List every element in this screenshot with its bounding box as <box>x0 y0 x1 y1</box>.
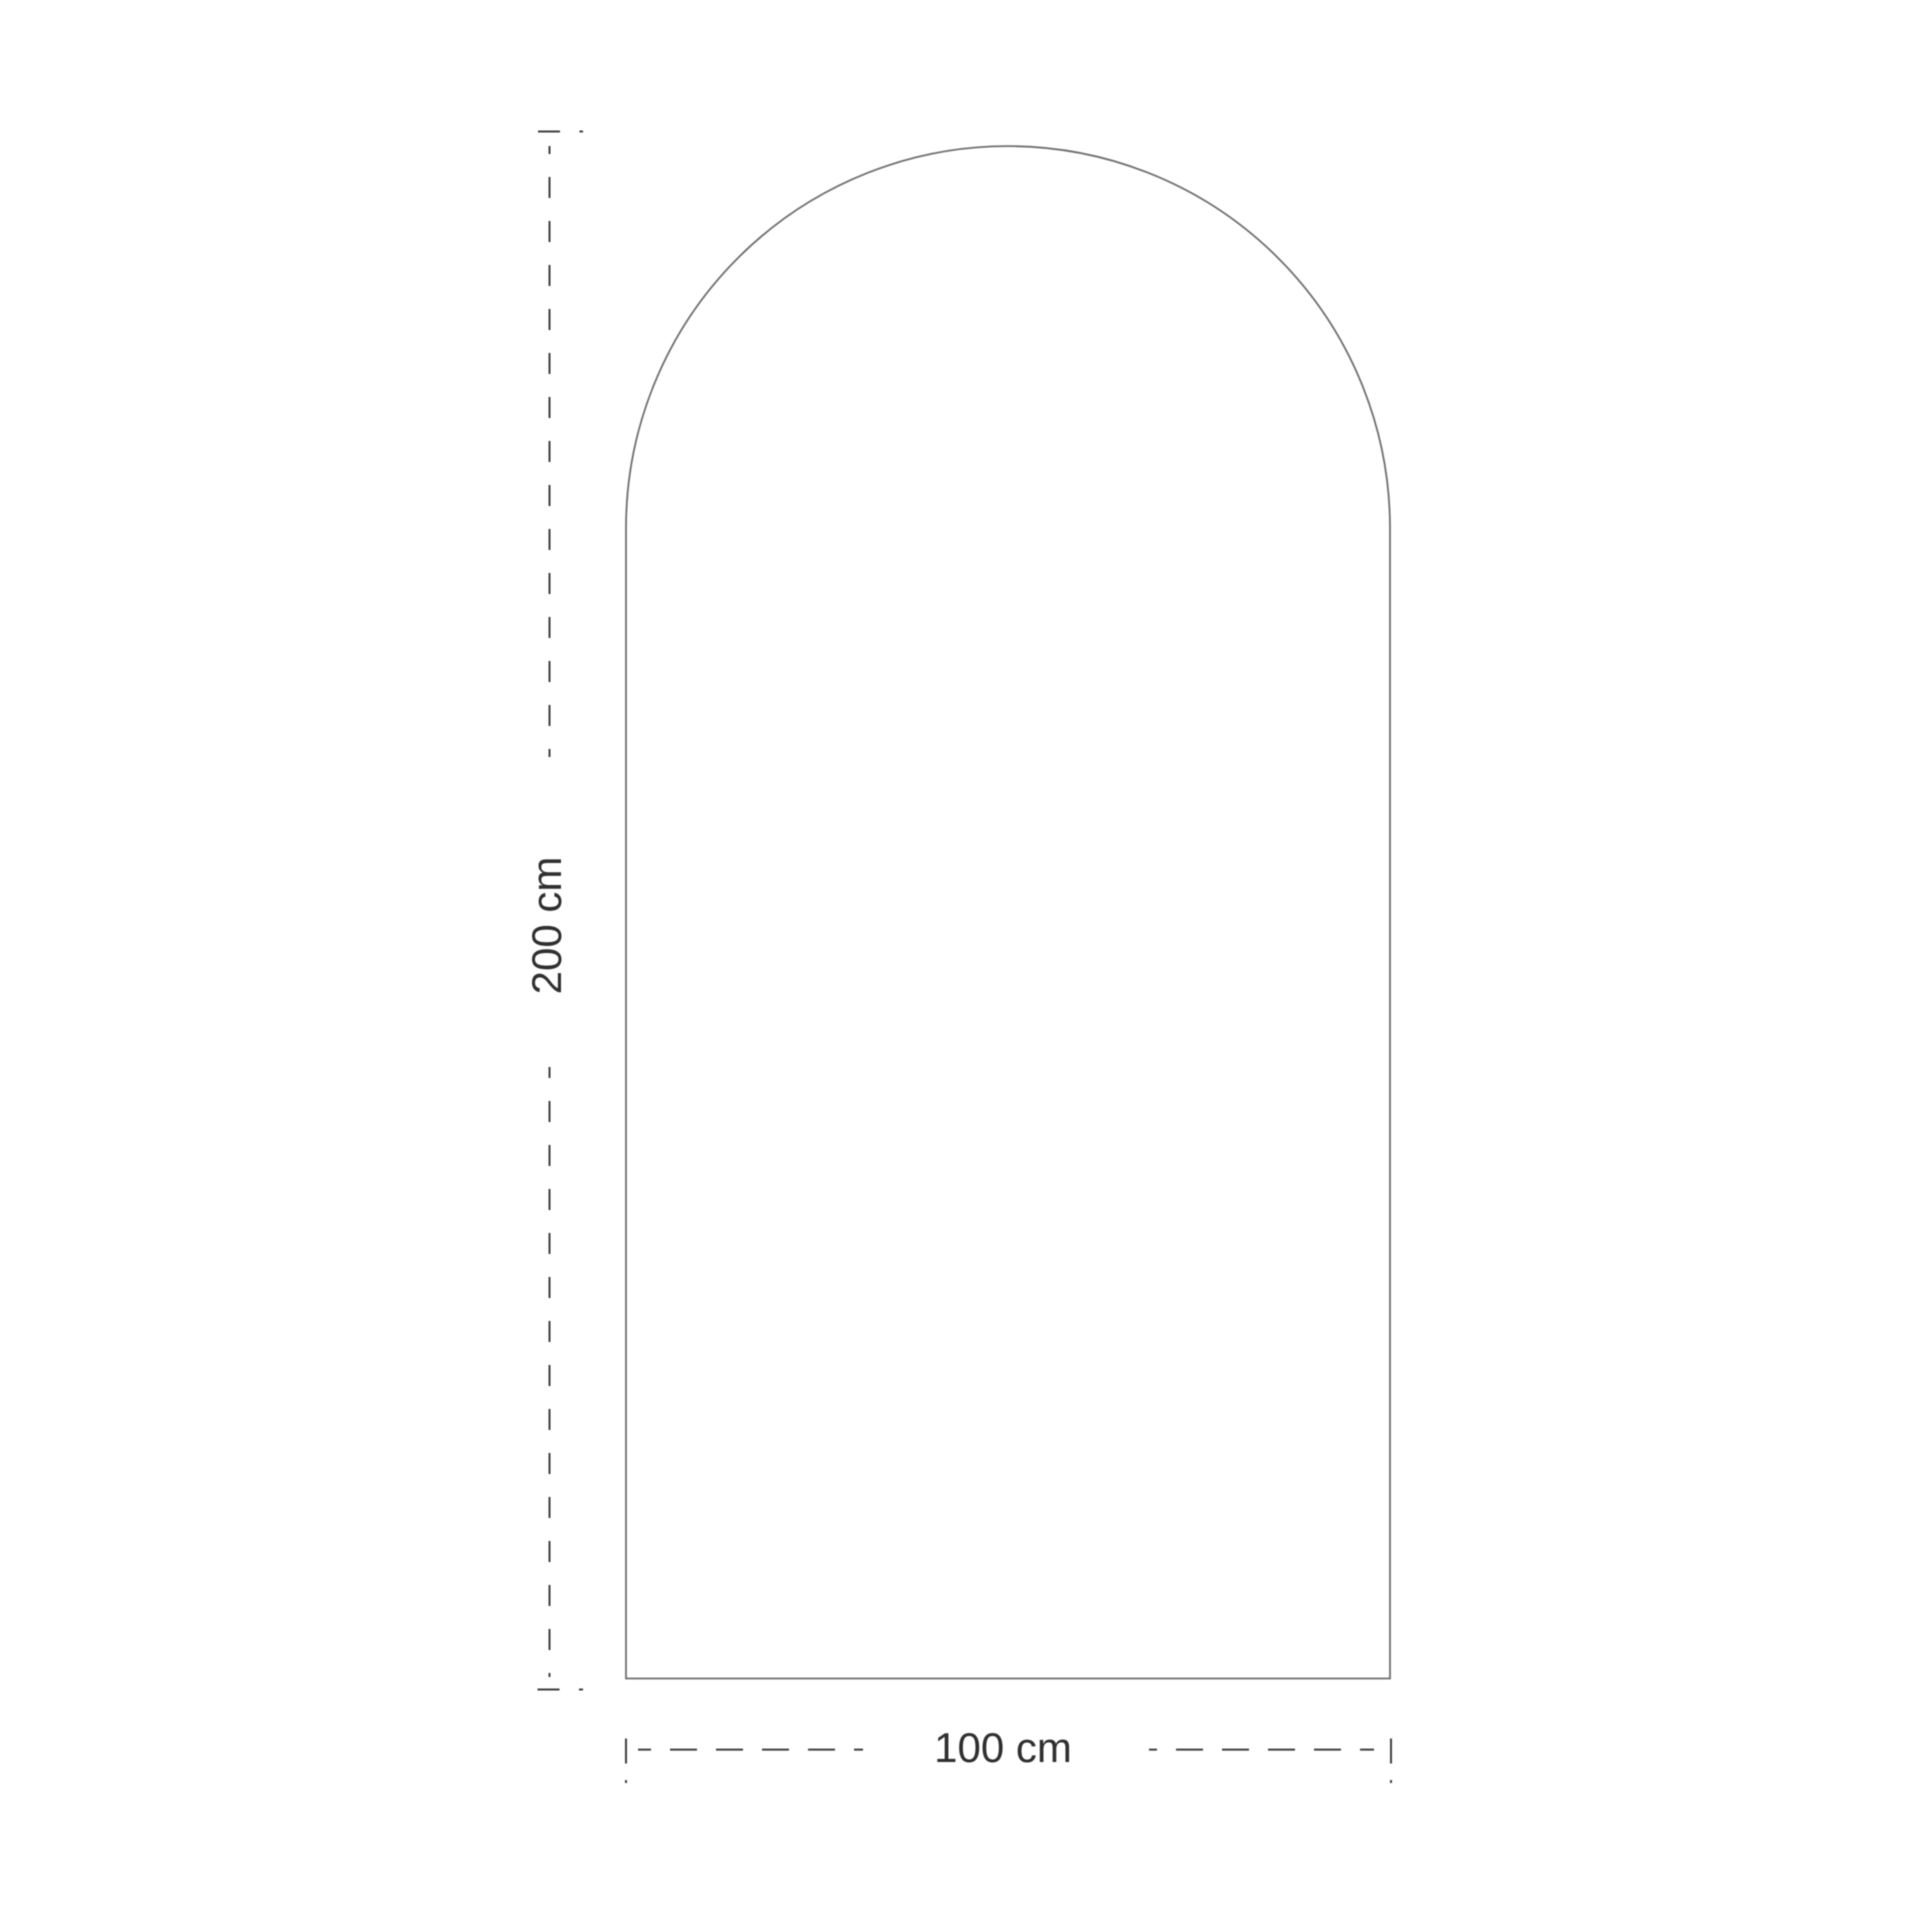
svg-text:200 cm: 200 cm <box>523 857 570 995</box>
svg-text:100 cm: 100 cm <box>934 1724 1072 1771</box>
